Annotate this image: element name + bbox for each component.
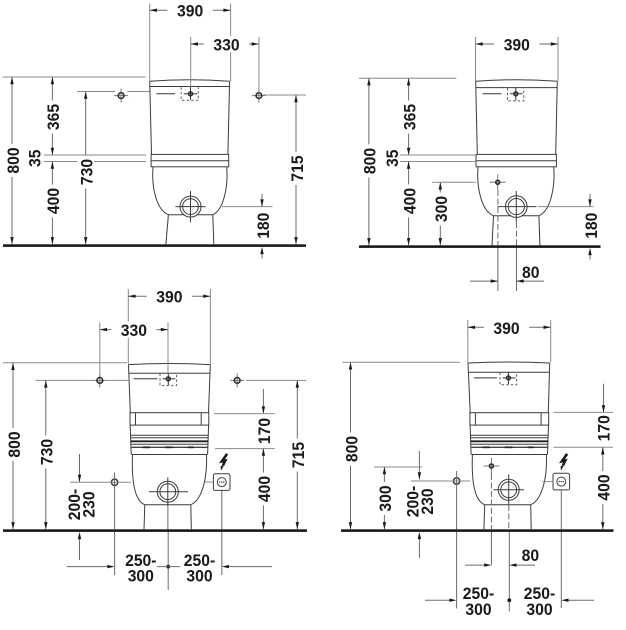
svg-text:330: 330: [213, 37, 239, 55]
svg-text:400: 400: [401, 188, 419, 214]
svg-text:730: 730: [79, 159, 97, 185]
svg-text:800: 800: [6, 431, 24, 457]
svg-text:300: 300: [465, 601, 491, 619]
svg-text:170: 170: [256, 418, 274, 444]
svg-text:180: 180: [583, 213, 601, 239]
svg-text:230: 230: [419, 488, 437, 514]
svg-text:800: 800: [343, 436, 361, 462]
svg-text:35: 35: [384, 150, 402, 168]
svg-text:300: 300: [377, 485, 395, 511]
svg-text:390: 390: [504, 37, 530, 55]
svg-text:800: 800: [362, 148, 380, 174]
svg-text:300: 300: [128, 568, 154, 586]
svg-text:180: 180: [255, 213, 273, 239]
svg-text:800: 800: [5, 147, 23, 173]
svg-text:80: 80: [522, 264, 540, 282]
svg-text:80: 80: [522, 547, 540, 565]
svg-text:170: 170: [596, 415, 614, 441]
svg-text:715: 715: [289, 155, 307, 181]
svg-text:400: 400: [596, 474, 614, 500]
svg-text:400: 400: [45, 188, 63, 214]
svg-text:300: 300: [186, 568, 212, 586]
svg-text:715: 715: [290, 442, 308, 468]
svg-text:400: 400: [256, 476, 274, 502]
svg-text:300: 300: [433, 196, 451, 222]
svg-text:35: 35: [26, 150, 44, 168]
svg-text:365: 365: [401, 104, 419, 130]
svg-text:390: 390: [156, 289, 182, 307]
svg-text:390: 390: [493, 320, 519, 338]
svg-text:390: 390: [177, 3, 203, 21]
svg-text:730: 730: [39, 439, 57, 465]
svg-text:330: 330: [121, 322, 147, 340]
svg-text:365: 365: [45, 104, 63, 130]
svg-text:300: 300: [526, 601, 552, 619]
svg-text:230: 230: [80, 491, 98, 517]
